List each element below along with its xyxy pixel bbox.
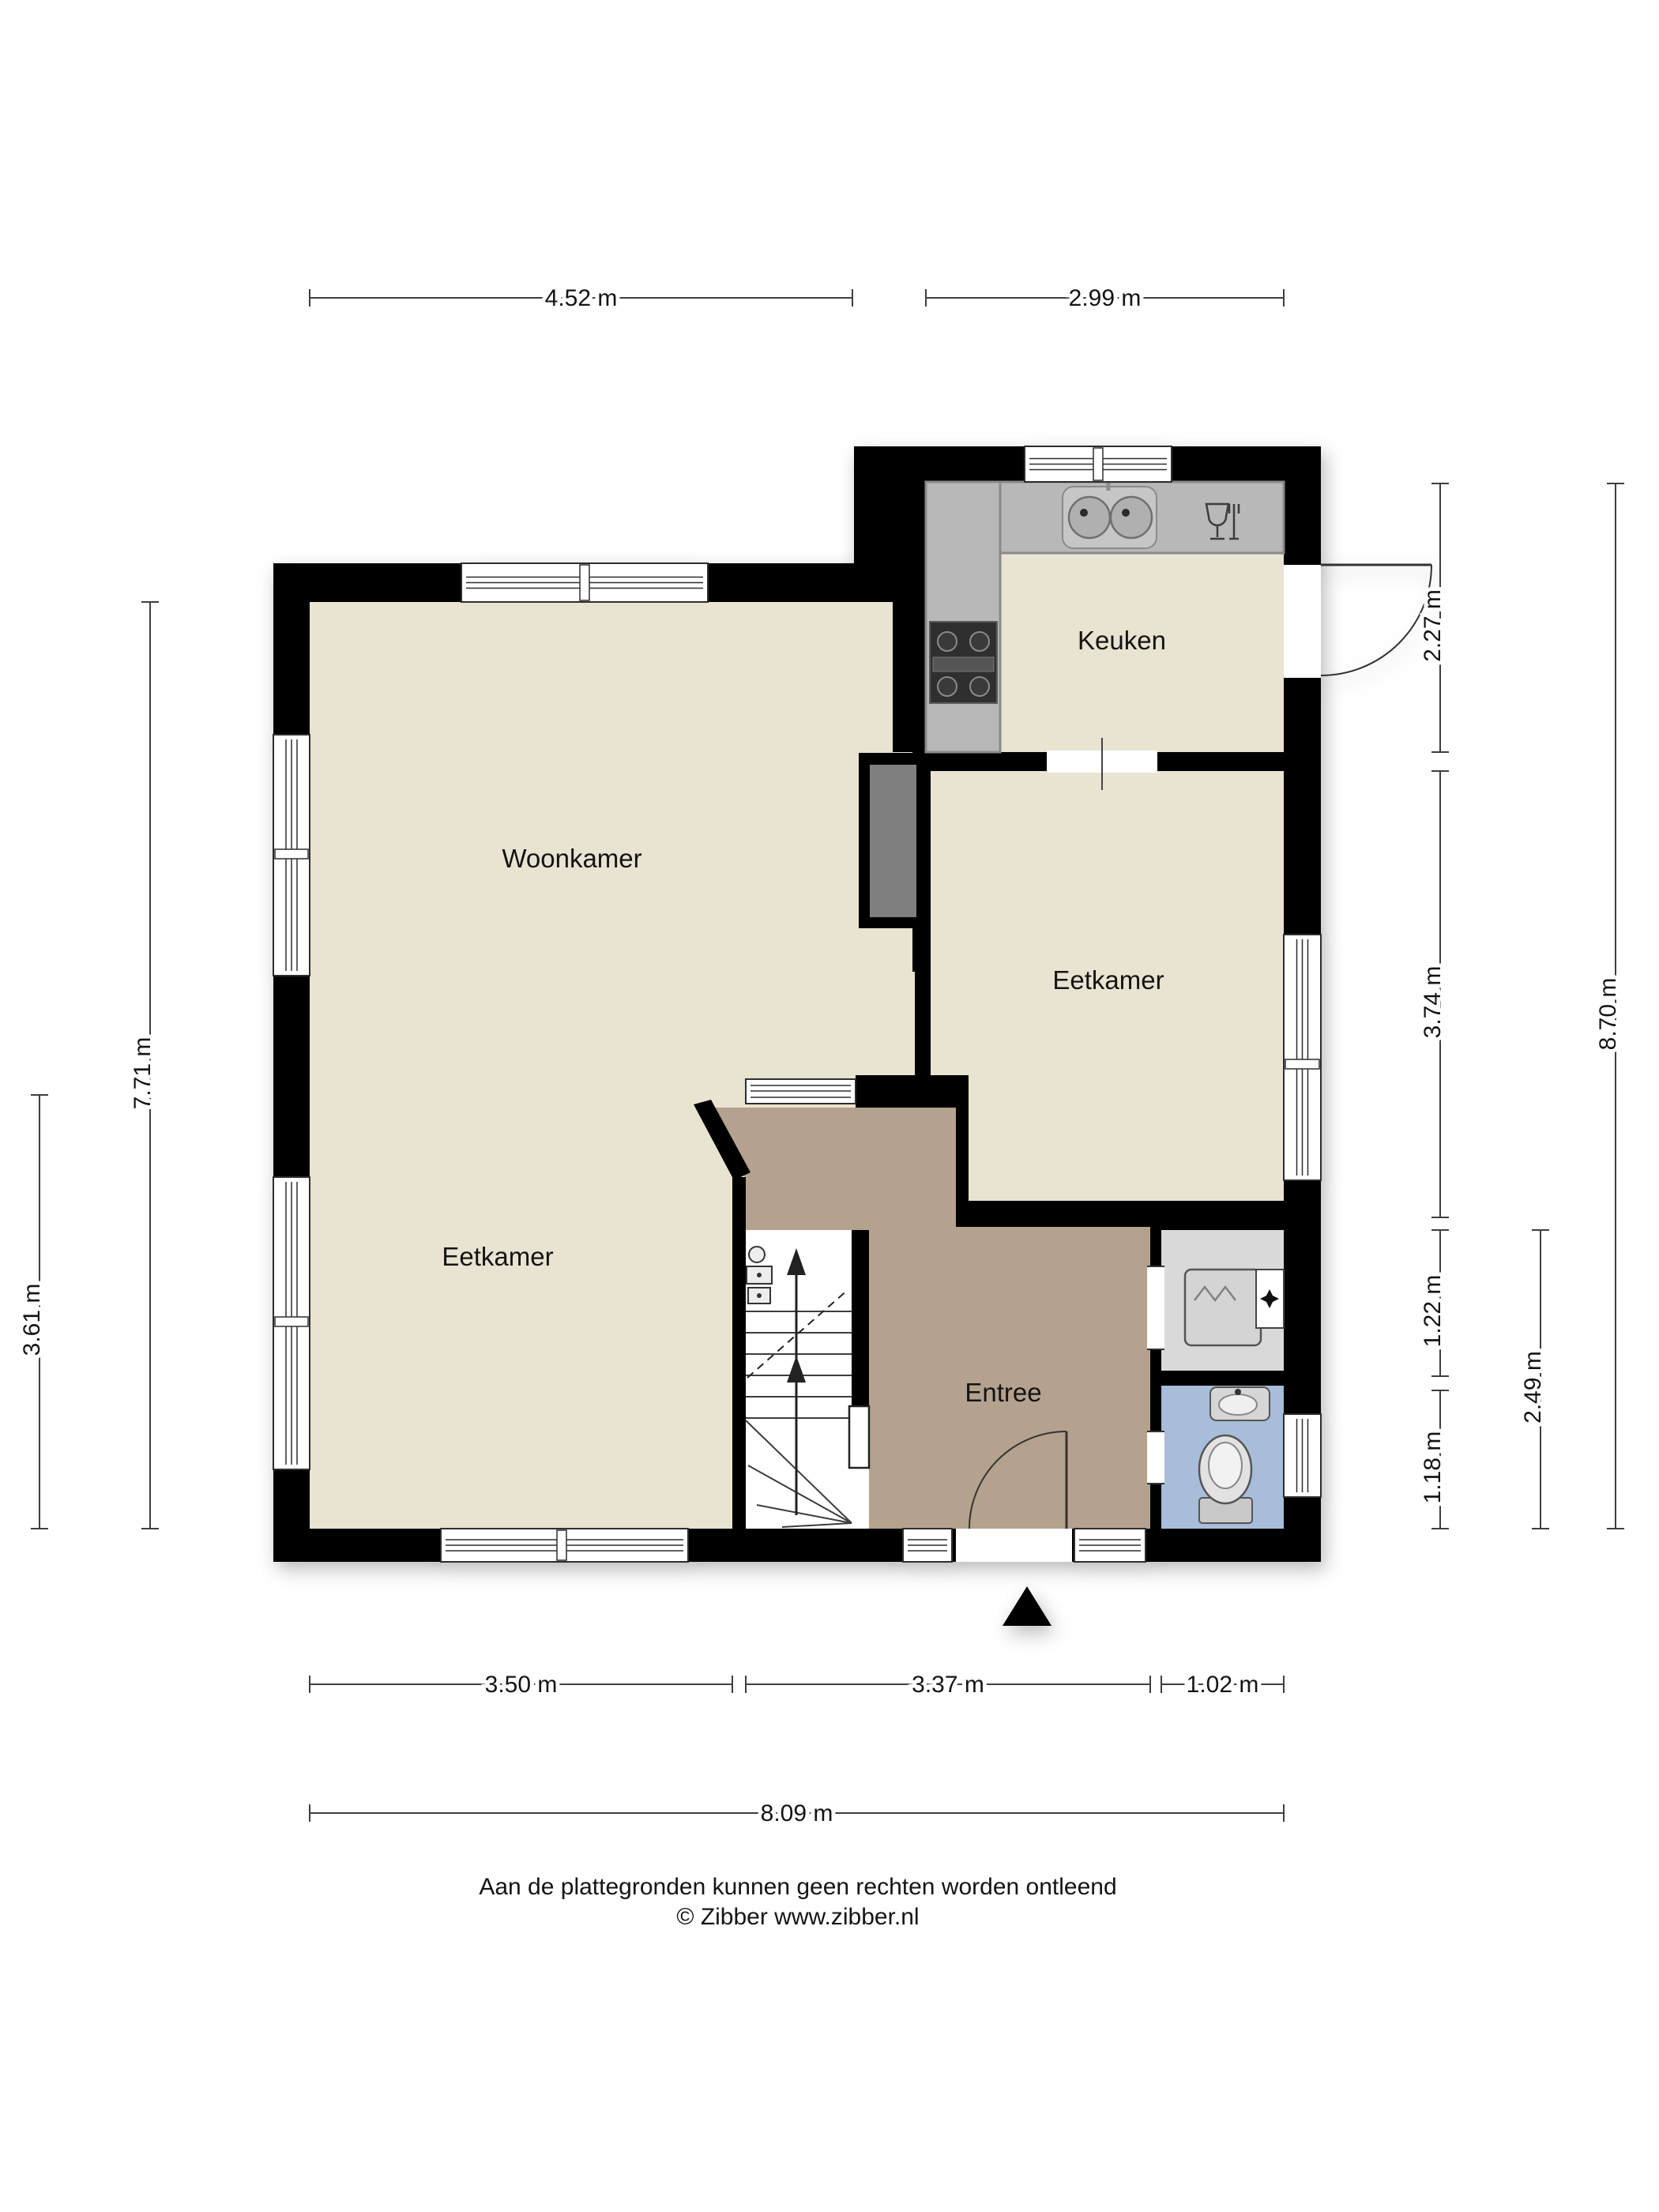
footer-disclaimer: Aan de plattegronden kunnen geen rechten…	[479, 1874, 1116, 1900]
door-keuken-opening	[1284, 565, 1321, 678]
floorplan-canvas: 4.52 m2.99 m3.50 m3.37 m1.02 m8.09 m7.71…	[0, 0, 1659, 2212]
dim-right-keuken-label: 2.27 m	[1420, 589, 1446, 662]
window-left-eetkamer-mullion	[275, 1317, 308, 1326]
window-top-woonkamer-mullion	[580, 565, 589, 600]
label-eetkamer-left: Eetkamer	[442, 1242, 553, 1271]
stove-burner	[970, 632, 989, 651]
dim-right-eetkamer-label: 3.74 m	[1420, 966, 1446, 1039]
wall-eetkamerleft-entree	[732, 1177, 746, 1529]
wall-eetkamer-south	[969, 1201, 1284, 1227]
dim-right-total-label: 8.70 m	[1595, 978, 1621, 1051]
dim-bottom-total-label: 8.09 m	[761, 1800, 833, 1826]
wall-entree-north	[856, 1075, 969, 1108]
door-front-opening	[956, 1529, 1072, 1562]
wall-keuken-west-upper	[854, 446, 926, 602]
label-woonkamer: Woonkamer	[502, 844, 641, 873]
window-right-eetkamer-mullion	[1285, 1059, 1319, 1069]
stove-grill	[933, 657, 994, 671]
chimney-fill	[870, 765, 916, 917]
door-washroom-opening	[1147, 1266, 1164, 1349]
dim-left-eetkamer-label: 3.61 m	[19, 1284, 45, 1356]
dim-right-washtoilet-label: 2.49 m	[1520, 1351, 1546, 1424]
kitchen-sink-drain	[1080, 509, 1088, 517]
wall-keuken-west-lower	[893, 602, 926, 752]
meter-cupboard-dot	[757, 1273, 762, 1277]
dim-right-wash-label: 1.22 m	[1420, 1275, 1446, 1348]
wall-stairs-east	[852, 1230, 869, 1406]
floorplan-page: 4.52 m2.99 m3.50 m3.37 m1.02 m8.09 m7.71…	[0, 0, 1659, 2212]
label-entree: Entree	[965, 1378, 1041, 1407]
dim-right-toilet-label: 1.18 m	[1420, 1431, 1446, 1504]
kitchen-sink-bowl	[1111, 497, 1152, 538]
dim-bottom-toilet-label: 1.02 m	[1187, 1672, 1259, 1698]
toilet-sink-tap	[1235, 1389, 1241, 1395]
meter-cupboard-dot	[757, 1293, 762, 1298]
label-eetkamer-right: Eetkamer	[1052, 965, 1164, 995]
door-keuken-arc	[1321, 565, 1431, 675]
toilet-sink-basin	[1219, 1394, 1257, 1415]
stair-newel	[849, 1406, 869, 1468]
building-group	[273, 446, 1431, 1626]
kitchen-sink-bowl	[1069, 497, 1110, 538]
wall-wash-toilet	[1161, 1371, 1284, 1386]
kitchen-sink-drain	[1122, 509, 1130, 517]
dim-top-keuken-label: 2.99 m	[1069, 285, 1142, 311]
footer-copyright: © Zibber www.zibber.nl	[676, 1904, 919, 1930]
entrance-arrow	[1003, 1586, 1051, 1626]
stove-burner	[970, 677, 989, 696]
window-left-woonkamer-mullion	[275, 849, 308, 859]
kitchen-counter-left	[926, 482, 1000, 752]
stove-burner	[938, 677, 957, 696]
dim-bottom-eetkamer-label: 3.50 m	[485, 1672, 558, 1698]
label-keuken: Keuken	[1078, 626, 1166, 655]
washing-machine-body	[1185, 1270, 1261, 1345]
stove-burner	[938, 632, 957, 651]
dim-top-woonkamer-label: 4.52 m	[545, 285, 618, 311]
wall-entree-jog	[956, 1108, 969, 1227]
window-bottom-eetkamer-mullion	[557, 1530, 566, 1560]
window-top-keuken-mullion	[1093, 448, 1103, 480]
door-toilet-opening	[1147, 1431, 1164, 1484]
meter-cupboard-icon	[749, 1247, 765, 1262]
dim-left-total-label: 7.71 m	[130, 1037, 156, 1110]
toilet-seat	[1209, 1443, 1242, 1488]
dim-bottom-entree-label: 3.37 m	[912, 1672, 984, 1698]
